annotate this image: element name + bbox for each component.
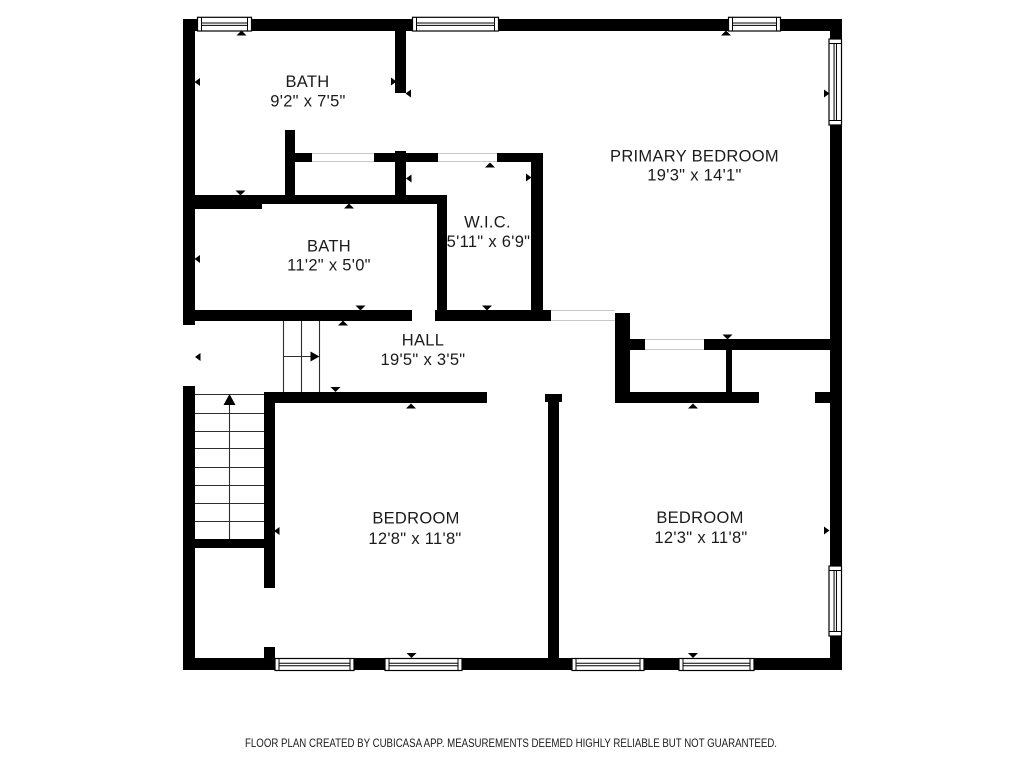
svg-text:BATH: BATH bbox=[307, 238, 351, 256]
svg-text:BEDROOM: BEDROOM bbox=[372, 510, 459, 528]
svg-text:BEDROOM: BEDROOM bbox=[656, 509, 743, 527]
svg-text:19'5" x 3'5": 19'5" x 3'5" bbox=[381, 351, 466, 369]
svg-text:W.I.C.: W.I.C. bbox=[464, 214, 511, 232]
svg-text:12'8" x 11'8": 12'8" x 11'8" bbox=[368, 530, 461, 548]
svg-text:5'11" x 6'9": 5'11" x 6'9" bbox=[447, 233, 531, 251]
svg-text:19'3" x 14'1": 19'3" x 14'1" bbox=[647, 167, 741, 185]
svg-text:BATH: BATH bbox=[286, 73, 330, 91]
svg-text:FLOOR PLAN CREATED BY CUBICASA: FLOOR PLAN CREATED BY CUBICASA APP. MEAS… bbox=[245, 736, 777, 750]
svg-text:11'2" x 5'0": 11'2" x 5'0" bbox=[287, 257, 371, 275]
svg-text:PRIMARY BEDROOM: PRIMARY BEDROOM bbox=[610, 148, 779, 166]
svg-text:HALL: HALL bbox=[402, 332, 444, 350]
svg-text:9'2" x 7'5": 9'2" x 7'5" bbox=[270, 93, 345, 111]
svg-text:12'3" x 11'8": 12'3" x 11'8" bbox=[654, 529, 747, 547]
